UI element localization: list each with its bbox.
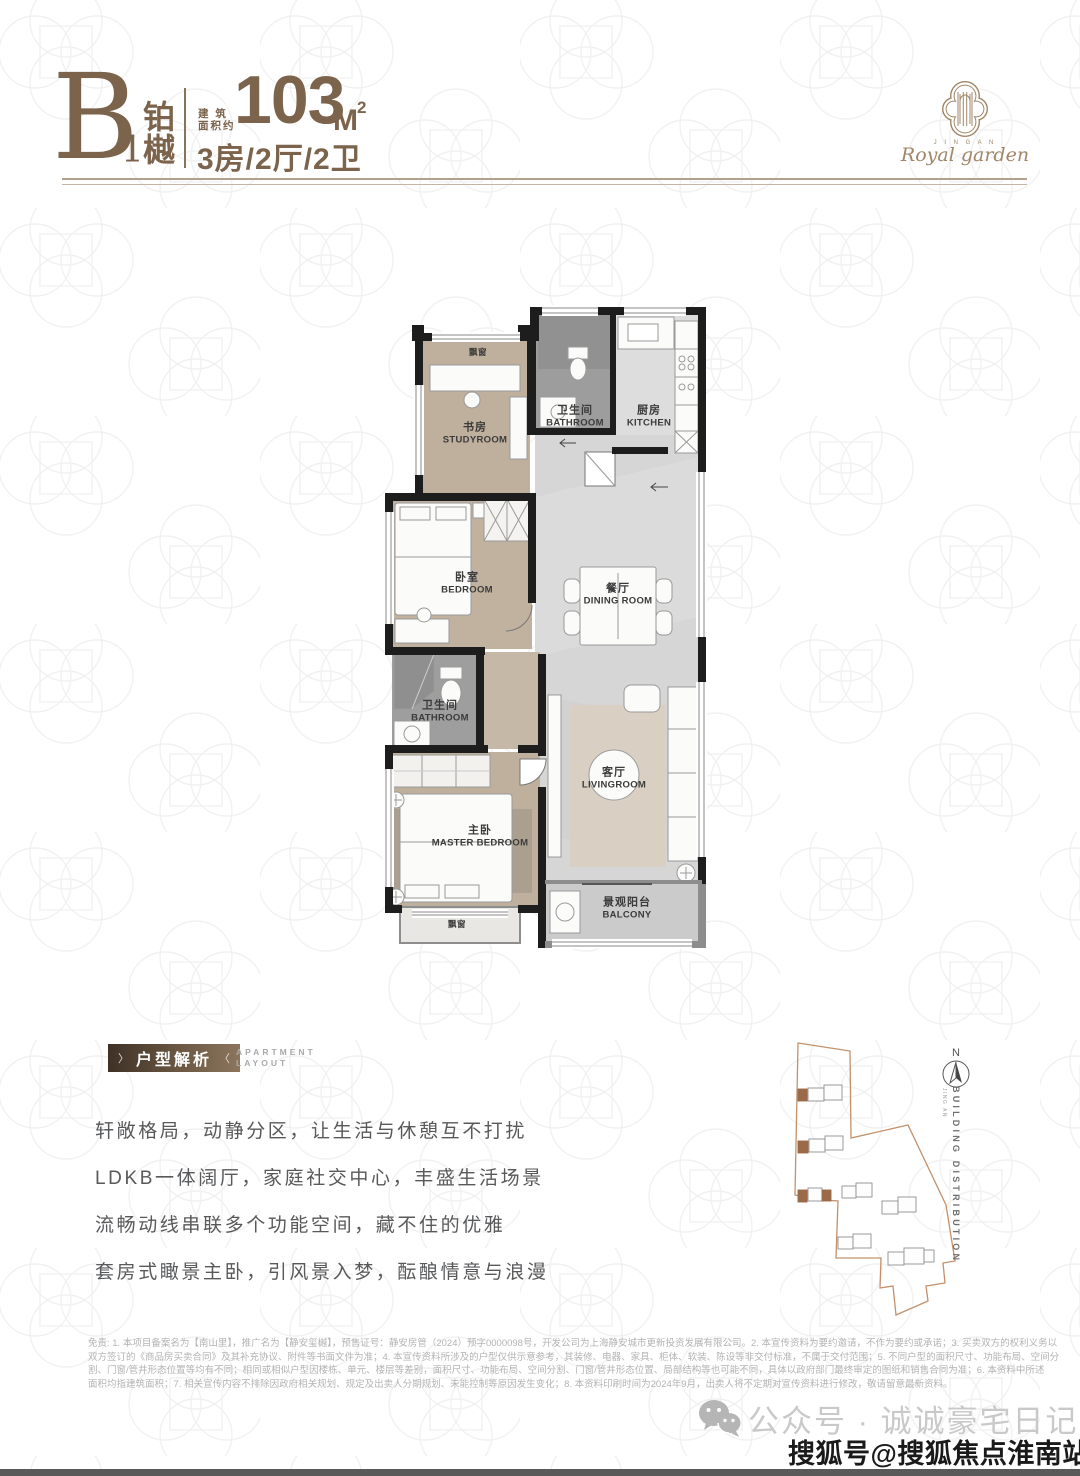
compass-icon: N	[943, 1047, 969, 1087]
label-bay-window-top: 飘窗	[469, 347, 487, 357]
disclaimer-line: 双方签订的《商品房买卖合同》及其补充协议、附件等书面文件为准；4. 本宣传资料所…	[88, 1351, 1012, 1365]
disclaimer-line: 割、门窗/管井形态位置等均有不同；相同或相似户型因楼栋、单元、楼层等差别，面积尺…	[88, 1364, 1012, 1378]
label-kitchen: 厨房KITCHEN	[627, 405, 671, 430]
area-value: 103	[234, 66, 344, 134]
label-balcony: 景观阳台BALCONY	[602, 897, 651, 922]
wechat-icon	[696, 1396, 744, 1442]
analysis-line: LDKB一体阔厅，家庭社交中心，丰盛生活场景	[95, 1153, 515, 1200]
layout-spec: 3房/2厅/2卫	[197, 134, 362, 178]
site-caption: BUILDING DISTRIBUTION	[951, 1086, 961, 1263]
label-master-bedroom: 主卧MASTER BEDROOM	[432, 825, 529, 850]
label-bathroom-top: 卫生间BATHROOM	[546, 405, 604, 430]
disclaimer-line: 免责: 1. 本项目备案名为【南山里】，推广名为【静安玺樾】，预售证号：静安房管…	[88, 1337, 1012, 1351]
poster-page: B 1 铂 樾 建 筑 面积约 103 M 2 3房/2厅/2卫	[0, 0, 1080, 1476]
analysis-subtitle: APARTMENT LAYOUT	[236, 1047, 316, 1070]
brand-logo: J I N G A N Royal garden	[898, 80, 1032, 165]
label-bathroom-mid: 卫生间BATHROOM	[411, 700, 469, 725]
site-caption-small: JING AN	[941, 1088, 947, 1118]
header-divider	[184, 88, 186, 168]
analysis-banner: 〉 户型解析 〈	[108, 1044, 240, 1072]
floor-plan-drawing	[372, 297, 708, 963]
chevron-left-icon: 〈	[219, 1050, 230, 1066]
label-bay-window-bottom: 飘窗	[448, 919, 466, 929]
label-studyroom: 书房STUDYROOM	[443, 422, 507, 447]
label-dining-room: 餐厅DINING ROOM	[584, 583, 653, 608]
buildings	[798, 1085, 934, 1265]
site-boundary	[795, 1043, 955, 1315]
label-livingroom: 客厅LIVINGROOM	[582, 767, 646, 792]
unit-name-char2: 樾	[143, 131, 175, 169]
analysis-line: 轩敞格局，动静分区，让生活与休憩互不打扰	[95, 1106, 515, 1153]
disclaimer-line: 面积均指建筑面积；7. 相关宣传内容不排除因政府相关规划、规定及出卖人分期规划、…	[88, 1378, 1012, 1392]
area-label: 建 筑 面积约	[198, 108, 236, 132]
header-rule	[62, 178, 1027, 185]
analysis-line: 套房式瞰景主卧，引风景入梦，酝酿情意与浪漫	[95, 1247, 515, 1294]
chevron-right-icon: 〉	[118, 1050, 129, 1066]
bottom-bar	[0, 1469, 1080, 1476]
analysis-paragraphs: 轩敞格局，动静分区，让生活与休憩互不打扰 LDKB一体阔厅，家庭社交中心，丰盛生…	[95, 1106, 515, 1294]
label-bedroom: 卧室BEDROOM	[441, 572, 493, 597]
analysis-title: 户型解析	[136, 1046, 212, 1070]
disclaimer: 免责: 1. 本项目备案名为【南山里】，推广名为【静安玺樾】，预售证号：静安房管…	[88, 1337, 1012, 1391]
area-unit: M	[333, 104, 358, 138]
compass-n: N	[952, 1047, 960, 1059]
area-label-line2: 面积约	[198, 120, 236, 132]
area-unit-superscript: 2	[357, 98, 366, 118]
brand-script: Royal garden	[898, 146, 1032, 165]
analysis-line: 流畅动线串联多个功能空间，藏不住的优雅	[95, 1200, 515, 1247]
quatrefoil-emblem-icon	[898, 80, 1032, 138]
area-label-line1: 建 筑	[198, 108, 236, 120]
unit-name: 铂 樾	[140, 101, 178, 168]
sohu-watermark: 搜狐号@搜狐焦点淮南站	[788, 1432, 1080, 1471]
floor-plan: 飘窗 书房STUDYROOM 卫生间BATHROOM 厨房KITCHEN 卧室B…	[372, 297, 708, 963]
